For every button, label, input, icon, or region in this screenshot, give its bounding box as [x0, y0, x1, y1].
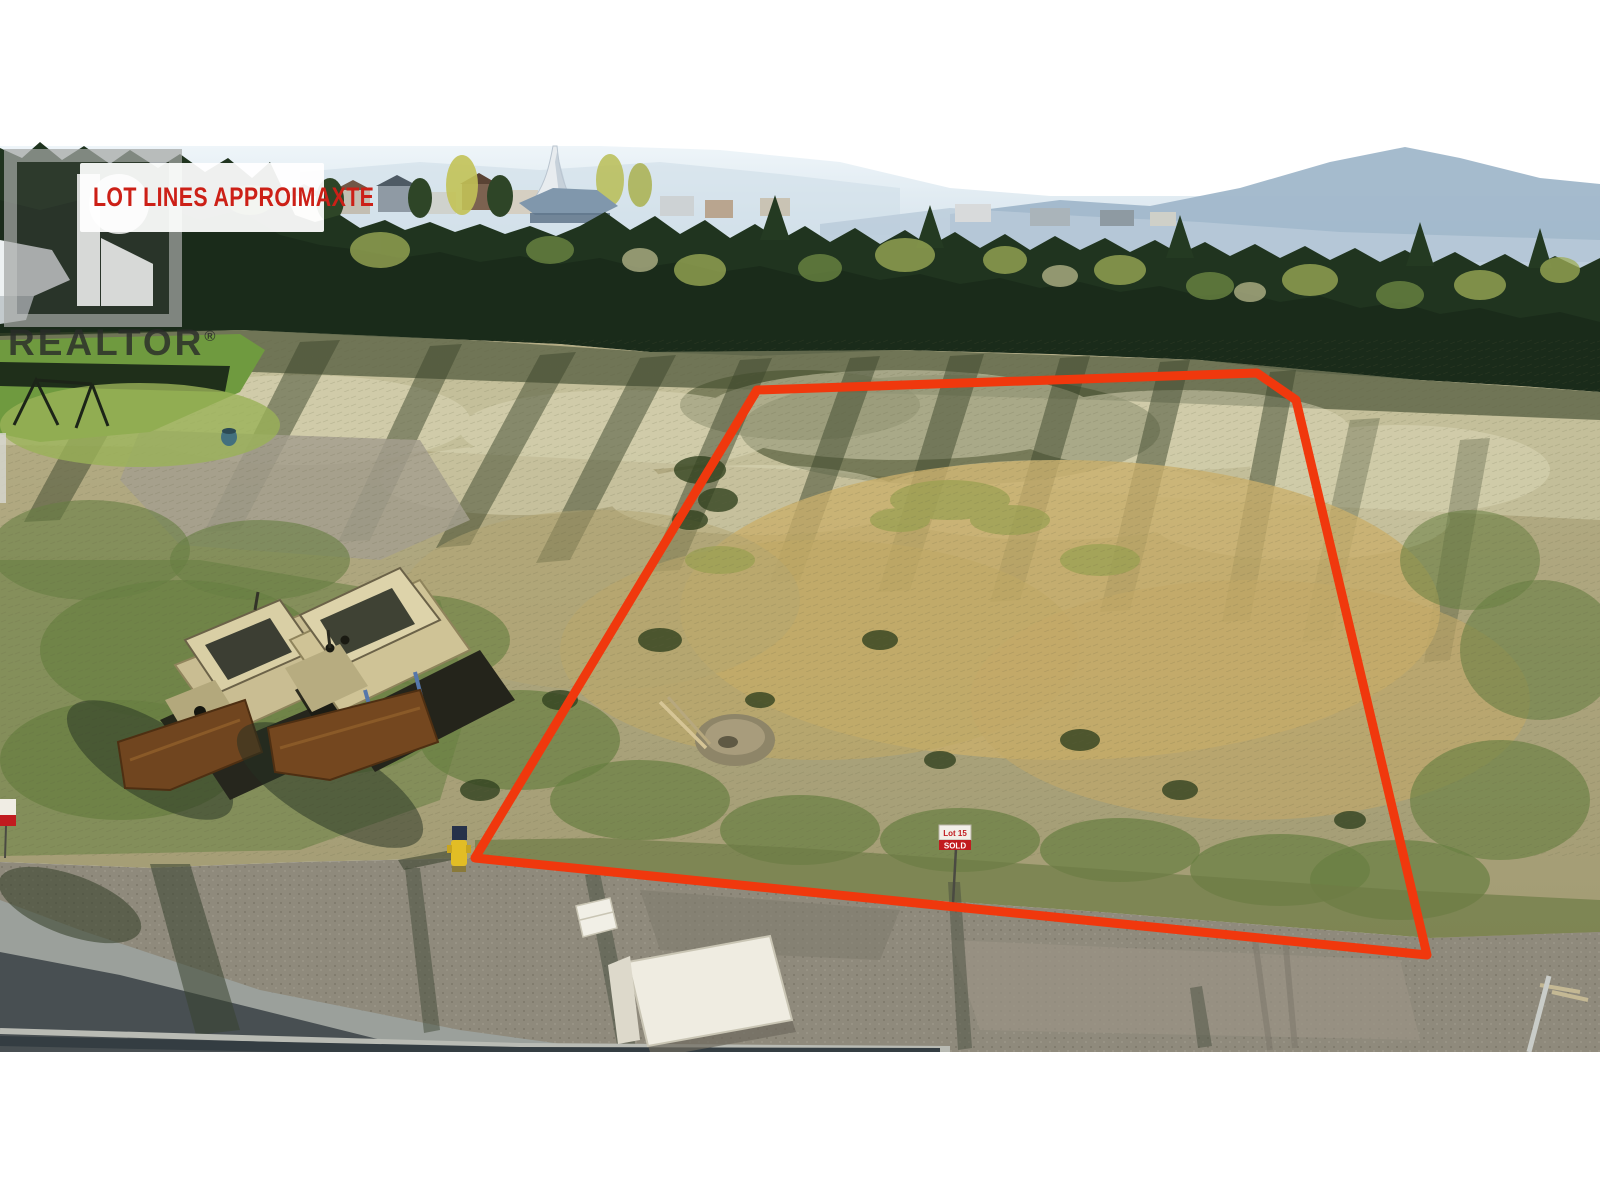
logo-r-leg [101, 238, 153, 306]
registered-mark: ® [204, 328, 215, 345]
realtor-wordmark: REALTOR® [8, 324, 198, 361]
lot-lines-banner: LOT LINES APPROIMAXTE [80, 163, 324, 232]
listing-photo: Lot 15 SOLD LOT LINES APPROIMAXTE REALTO… [0, 0, 1600, 1200]
sign-sold-label: SOLD [944, 842, 966, 851]
sign-lot-number: Lot 15 [943, 829, 967, 838]
realtor-label: REALTOR [8, 322, 204, 363]
photo-bottom-margin [0, 1052, 1600, 1200]
white-post [0, 433, 6, 503]
lot-lines-text: LOT LINES APPROIMAXTE [93, 182, 374, 213]
